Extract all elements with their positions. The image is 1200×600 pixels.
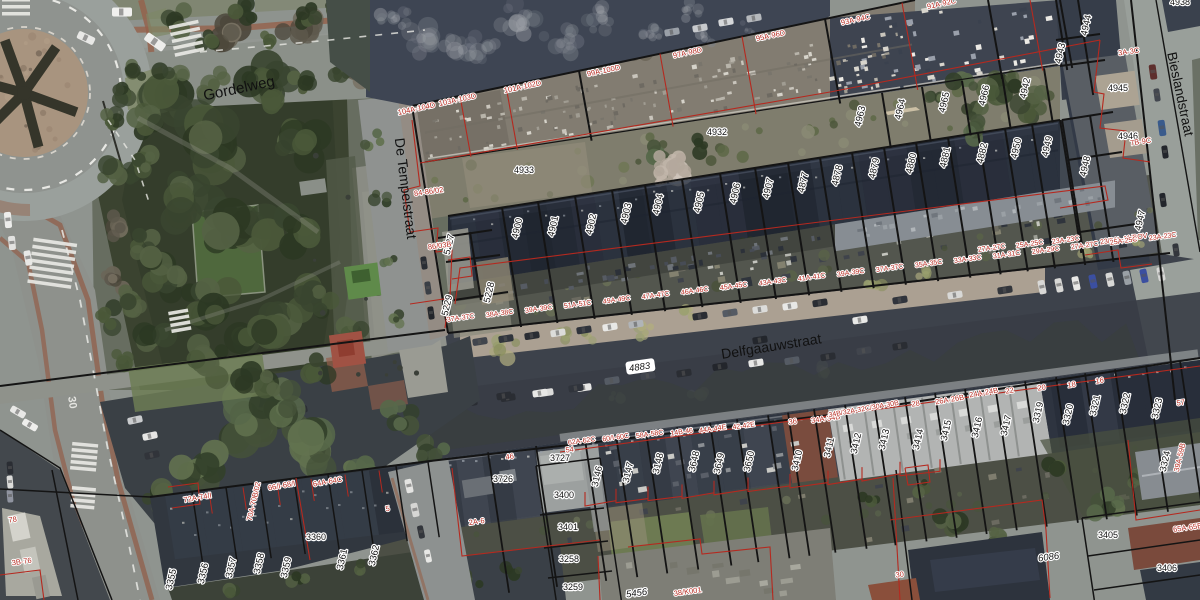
svg-text:3400: 3400 <box>554 490 574 500</box>
svg-text:3405: 3405 <box>1098 530 1118 540</box>
svg-text:3360: 3360 <box>306 532 326 542</box>
svg-text:4933: 4933 <box>514 165 534 175</box>
svg-text:16: 16 <box>1095 375 1105 385</box>
svg-text:3401: 3401 <box>558 522 578 532</box>
svg-text:46: 46 <box>505 451 515 461</box>
svg-text:20: 20 <box>1037 382 1047 392</box>
svg-text:78: 78 <box>8 514 18 524</box>
svg-text:28: 28 <box>911 398 921 408</box>
svg-text:3259: 3259 <box>563 582 583 592</box>
svg-text:4932: 4932 <box>707 127 727 137</box>
svg-text:18: 18 <box>1067 379 1077 389</box>
svg-text:3726: 3726 <box>493 474 513 484</box>
svg-text:3727: 3727 <box>550 453 570 463</box>
svg-text:4945: 4945 <box>1108 83 1128 93</box>
svg-text:36: 36 <box>788 416 798 426</box>
svg-text:30: 30 <box>65 396 79 410</box>
svg-text:57: 57 <box>1176 397 1186 407</box>
svg-text:3258: 3258 <box>559 554 579 564</box>
svg-text:4938: 4938 <box>1170 0 1190 7</box>
svg-text:3406: 3406 <box>1157 563 1177 573</box>
svg-text:22: 22 <box>1005 385 1015 395</box>
svg-text:30: 30 <box>895 569 905 579</box>
